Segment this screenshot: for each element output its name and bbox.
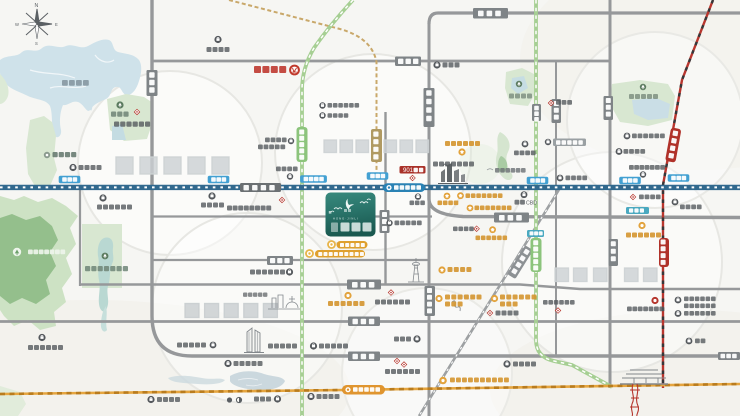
svg-text:S: S — [35, 41, 38, 46]
svg-text:E: E — [55, 22, 58, 27]
svg-text:CBD: CBD — [526, 201, 537, 207]
svg-text:N: N — [35, 3, 39, 9]
svg-text:W: W — [15, 22, 19, 27]
svg-text:HONG·JINLI: HONG·JINLI — [333, 217, 359, 221]
svg-text:901: 901 — [403, 168, 414, 174]
